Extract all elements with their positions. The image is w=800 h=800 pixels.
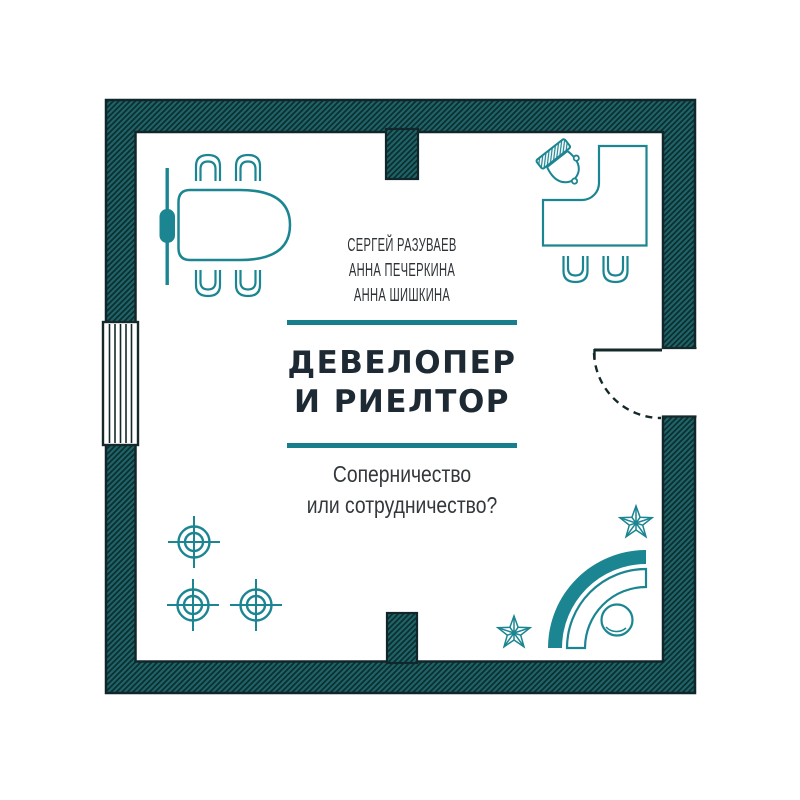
stool-icon bbox=[602, 605, 633, 636]
guest-chair-icon bbox=[604, 256, 628, 282]
author-name: АННА ШИШКИНА bbox=[309, 283, 495, 308]
divider-top bbox=[287, 320, 517, 325]
book-subtitle: Соперничество или сотрудничество? bbox=[252, 459, 552, 520]
plant-icon bbox=[498, 616, 530, 647]
chair-icon bbox=[196, 270, 220, 296]
ceiling-light-icon bbox=[230, 579, 282, 631]
author-name: АННА ПЕЧЕРКИНА bbox=[309, 258, 495, 283]
book-cover: СЕРГЕЙ РАЗУВАЕВ АННА ПЕЧЕРКИНА АННА ШИШК… bbox=[0, 0, 800, 800]
title-line: И РИЕЛТОР bbox=[202, 383, 602, 422]
reception-desk-icon bbox=[548, 550, 646, 648]
partition-wall-bottom bbox=[387, 613, 417, 663]
ceiling-light-icon bbox=[168, 516, 220, 568]
book-title: ДЕВЕЛОПЕР И РИЕЛТОР bbox=[202, 344, 602, 422]
chair-icon bbox=[196, 155, 220, 181]
office-chair-icon bbox=[536, 138, 591, 194]
plant-icon bbox=[620, 506, 652, 537]
presentation-board-icon bbox=[160, 168, 176, 285]
authors-block: СЕРГЕЙ РАЗУВАЕВ АННА ПЕЧЕРКИНА АННА ШИШК… bbox=[252, 233, 552, 308]
ceiling-light-icon bbox=[167, 579, 219, 631]
divider-bottom bbox=[287, 443, 517, 448]
door-swing-icon bbox=[594, 348, 700, 418]
author-name: СЕРГЕЙ РАЗУВАЕВ bbox=[309, 233, 495, 258]
partition-wall-top bbox=[386, 129, 418, 179]
window-icon bbox=[103, 322, 138, 445]
subtitle-line: или сотрудничество? bbox=[276, 490, 528, 521]
subtitle-line: Соперничество bbox=[276, 459, 528, 490]
chair-icon bbox=[236, 155, 260, 181]
guest-chair-icon bbox=[564, 256, 588, 282]
title-line: ДЕВЕЛОПЕР bbox=[202, 344, 602, 383]
